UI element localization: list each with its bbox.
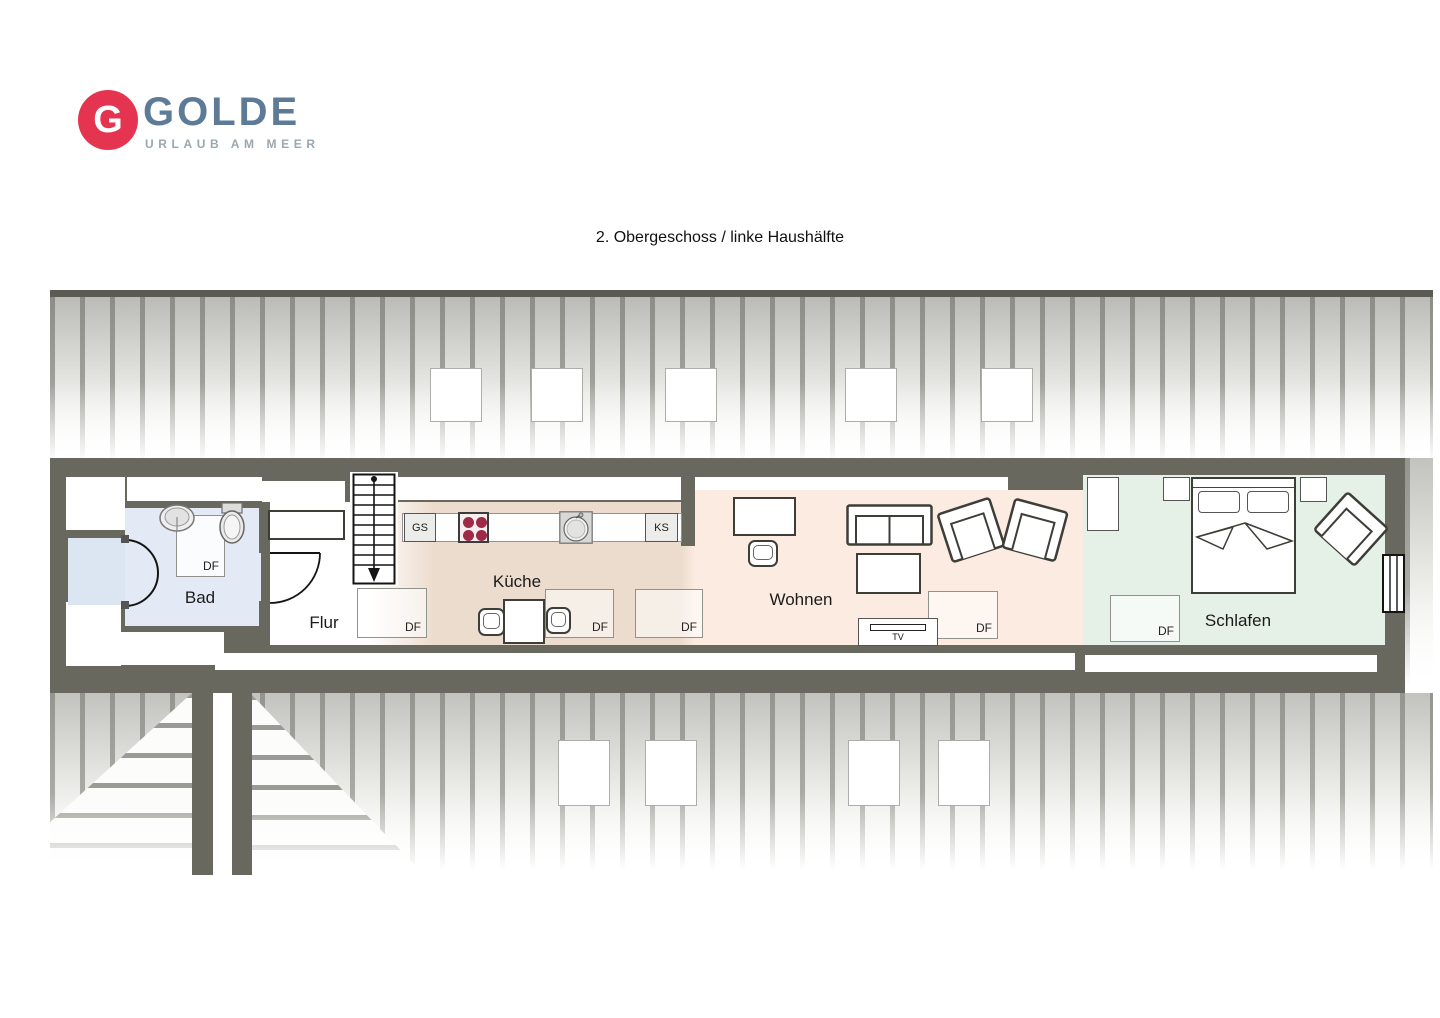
desk bbox=[733, 497, 796, 536]
desk-chair bbox=[748, 540, 778, 567]
stove bbox=[458, 512, 489, 543]
roof-window bbox=[665, 368, 717, 422]
roof-window-label: DF bbox=[203, 559, 219, 573]
washbasin bbox=[158, 503, 196, 533]
dishwasher-label: GS bbox=[412, 522, 428, 534]
wall-stub bbox=[259, 601, 270, 645]
bathroom-door bbox=[266, 549, 324, 607]
dining-table bbox=[503, 599, 545, 644]
dining-chair bbox=[478, 608, 505, 636]
gable-slope-right bbox=[252, 695, 424, 875]
burner-icon bbox=[476, 530, 487, 541]
hall-label: Flur bbox=[293, 613, 355, 633]
roof-hatch-bottom bbox=[50, 693, 1433, 875]
kitchen-label: Küche bbox=[485, 572, 549, 592]
roof-window bbox=[981, 368, 1033, 422]
tv-board: TV bbox=[858, 618, 938, 646]
nightstand bbox=[1163, 477, 1190, 501]
entry-annex-floor bbox=[68, 538, 125, 605]
blanket-fold bbox=[1193, 515, 1294, 557]
roof-window bbox=[430, 368, 482, 422]
double-bed bbox=[1191, 477, 1296, 594]
fridge-label: KS bbox=[654, 522, 669, 534]
roof-window bbox=[558, 740, 610, 806]
kitchen-living-wall bbox=[681, 458, 695, 546]
burner-icon bbox=[463, 530, 474, 541]
living-label: Wohnen bbox=[765, 590, 837, 610]
roof-hatch-right bbox=[1405, 458, 1433, 693]
logo-monogram-icon: G bbox=[78, 90, 138, 150]
roof-window-marker-bedroom: DF bbox=[1110, 595, 1180, 642]
roof-window-marker-living: DF bbox=[928, 591, 998, 639]
pillow bbox=[1198, 491, 1240, 513]
logo-tagline: URLAUB AM MEER bbox=[145, 137, 320, 151]
fridge: KS bbox=[645, 513, 678, 542]
burner-icon bbox=[476, 517, 487, 528]
wall-opening bbox=[693, 477, 1008, 491]
floorplan-page: G GOLDE URLAUB AM MEER 2. Obergeschoss /… bbox=[0, 0, 1440, 1018]
bathroom-label: Bad bbox=[170, 588, 230, 608]
roof-window-label: DF bbox=[681, 620, 697, 634]
wall-opening bbox=[112, 632, 224, 665]
staircase bbox=[352, 473, 396, 585]
coffee-table bbox=[856, 553, 921, 594]
wall-opening bbox=[66, 477, 125, 530]
roof-window-label: DF bbox=[592, 620, 608, 634]
bedroom-label: Schlafen bbox=[1197, 611, 1279, 631]
roof-window bbox=[531, 368, 583, 422]
wardrobe bbox=[1087, 477, 1119, 531]
wall-opening bbox=[1085, 655, 1377, 672]
roof-window bbox=[938, 740, 990, 806]
entry-double-door bbox=[118, 532, 164, 612]
logo-brand: GOLDE bbox=[143, 90, 300, 135]
sofa bbox=[846, 504, 933, 546]
roof-window-label: DF bbox=[405, 620, 421, 634]
wall-opening bbox=[127, 477, 262, 501]
wall-opening bbox=[262, 481, 345, 502]
dishwasher: GS bbox=[404, 513, 436, 542]
roof-window-marker-hall: DF bbox=[357, 588, 427, 638]
roof-window bbox=[848, 740, 900, 806]
nightstand bbox=[1300, 477, 1327, 502]
gable-wall bbox=[192, 693, 213, 875]
page-title: 2. Obergeschoss / linke Haushälfte bbox=[0, 229, 1440, 247]
roof-ridge bbox=[50, 290, 1433, 297]
kitchen-sink bbox=[559, 511, 593, 544]
sideboard bbox=[268, 510, 345, 540]
headboard bbox=[1193, 479, 1294, 488]
gable-wall bbox=[232, 693, 252, 875]
roof-window bbox=[845, 368, 897, 422]
burner-icon bbox=[463, 517, 474, 528]
toilet bbox=[217, 503, 247, 545]
roof-window bbox=[645, 740, 697, 806]
radiator bbox=[1382, 554, 1405, 613]
roof-window-label: DF bbox=[976, 621, 992, 635]
roof-hatch-top bbox=[50, 290, 1433, 458]
tv-screen bbox=[870, 624, 926, 631]
roof-window-label: DF bbox=[1158, 624, 1174, 638]
logo-monogram: G bbox=[93, 99, 123, 142]
roof-window-marker-kitchen-2: DF bbox=[635, 589, 703, 638]
dining-chair bbox=[546, 607, 571, 634]
wall-opening bbox=[397, 477, 687, 500]
tv-label: TV bbox=[859, 632, 937, 642]
gable-slope-left bbox=[50, 693, 192, 875]
pillow bbox=[1247, 491, 1289, 513]
wall-opening bbox=[215, 653, 1075, 670]
gable-gap bbox=[213, 693, 232, 875]
kitchen-counter bbox=[402, 513, 682, 542]
